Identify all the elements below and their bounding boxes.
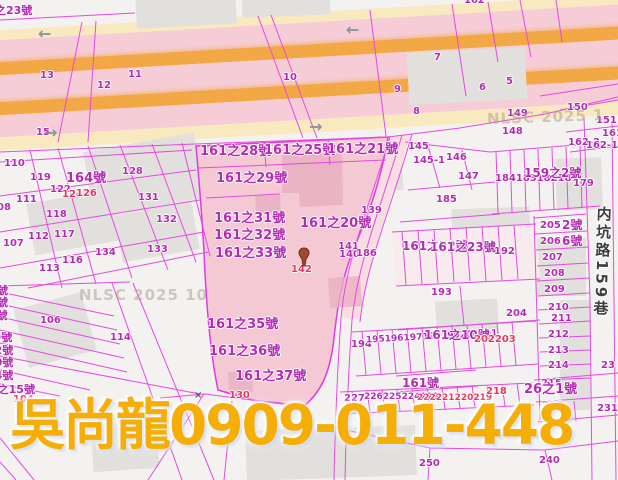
parcel-label: 23: [601, 361, 615, 371]
road-direction-arrow-icon: →: [38, 26, 51, 42]
nlsc-watermark: NLSC 2025 10: [79, 286, 208, 304]
road-direction-arrow-icon: →: [346, 22, 359, 38]
parcel-label: 126: [76, 189, 97, 199]
parcel-label: 212: [548, 330, 569, 340]
parcel-label: 5: [506, 77, 513, 87]
realtor-watermark-text: 吳尚龍0909-011-448: [10, 392, 573, 458]
parcel-label: 161之32號: [214, 229, 285, 242]
parcel-label: 8: [413, 107, 420, 117]
parcel-label: 161之37號: [235, 370, 306, 383]
parcel-label: 2號: [562, 219, 582, 231]
parcel-label: 11: [128, 70, 142, 80]
parcel-label: 6號: [562, 235, 582, 247]
parcel-label: 161號: [402, 377, 439, 389]
parcel-label: 161: [602, 129, 618, 139]
parcel-label: 號: [0, 285, 8, 296]
parcel-label: 161之20號: [300, 217, 371, 230]
parcel-label: 161之21號: [327, 143, 398, 156]
parcel-label: 112: [28, 232, 49, 242]
parcel-label: 7: [434, 53, 441, 63]
parcel-label: 161之28號: [200, 145, 271, 158]
parcel-label: 202203: [474, 335, 516, 345]
parcel-label: 231: [597, 404, 618, 414]
parcel-label: 133: [147, 245, 168, 255]
parcel-label: 號: [0, 297, 8, 308]
parcel-label: 193: [431, 288, 452, 298]
parcel-label: 131: [138, 193, 159, 203]
parcel-label: 161之25號: [264, 144, 335, 157]
parcel-label: 162-1: [586, 141, 618, 151]
parcel-label: 211: [551, 314, 572, 324]
parcel-label: 209: [544, 285, 565, 295]
parcel-label: 134: [95, 248, 116, 258]
parcel-label: 之14號: [0, 370, 13, 381]
parcel-label: 210: [548, 303, 569, 313]
parcel-label: 145-1: [413, 156, 445, 166]
parcel-label: 161之36號: [209, 345, 280, 358]
parcel-label: 148: [502, 127, 523, 137]
parcel-label: 161之31號: [214, 212, 285, 225]
parcel-label: 214: [548, 361, 569, 371]
road-direction-arrow-icon: →: [309, 119, 322, 135]
parcel-label: 204: [506, 309, 527, 319]
parcel-label: 139: [361, 206, 382, 216]
parcel-label: 132: [156, 215, 177, 225]
parcel-label: 10: [283, 73, 297, 83]
parcel-label: 145: [408, 142, 429, 152]
parcel-label: 186: [356, 249, 377, 259]
parcel-label: 08: [0, 203, 11, 213]
road-direction-arrow-icon: →: [44, 125, 57, 141]
parcel-label: 之23號: [0, 5, 32, 16]
parcel-label: 19號: [0, 332, 12, 343]
parcel-label: 213: [548, 346, 569, 356]
parcel-label: 161之23號: [430, 241, 496, 253]
parcel-label: 之12號: [0, 345, 13, 356]
parcel-label: 114: [110, 333, 131, 343]
parcel-label: 206: [540, 237, 561, 247]
parcel-label: 110: [4, 159, 25, 169]
parcel-label: 之10號: [0, 357, 13, 368]
parcel-label: 207: [542, 253, 563, 263]
parcel-label: 13: [40, 71, 54, 81]
parcel-label: 118: [46, 210, 67, 220]
parcel-label: 161之29號: [216, 172, 287, 185]
parcel-label: 192: [494, 247, 515, 257]
parcel-label: 106: [40, 316, 61, 326]
parcel-label: 117: [54, 230, 75, 240]
parcel-label: 147: [458, 172, 479, 182]
parcel-label: 164號: [66, 172, 106, 185]
parcel-label: 9號: [0, 310, 8, 321]
parcel-label: 6: [479, 83, 486, 93]
parcel-label: 161之35號: [207, 318, 278, 331]
parcel-label: 146: [446, 153, 467, 163]
parcel-label: 161之33號: [215, 247, 286, 260]
parcel-label: 116: [62, 256, 83, 266]
parcel-label: 162: [464, 0, 485, 6]
parcel-label: 9: [394, 85, 401, 95]
parcel-label: 113: [39, 264, 60, 274]
parcel-label: 128: [122, 167, 143, 177]
parcel-label: 250: [419, 459, 440, 469]
parcel-label: 12: [97, 81, 111, 91]
parcel-label: 208: [544, 269, 565, 279]
parcel-label: 185: [436, 195, 457, 205]
parcel-label: 205: [540, 221, 561, 231]
parcel-label: 119: [30, 173, 51, 183]
map-canvas[interactable]: 之23號162131211109765815150149151148161162…: [0, 0, 618, 480]
road-name-label: 内坑路159巷: [590, 206, 615, 319]
parcel-label: 107: [3, 239, 24, 249]
parcel-label: 111: [16, 195, 37, 205]
parcel-label: 179: [573, 179, 594, 189]
